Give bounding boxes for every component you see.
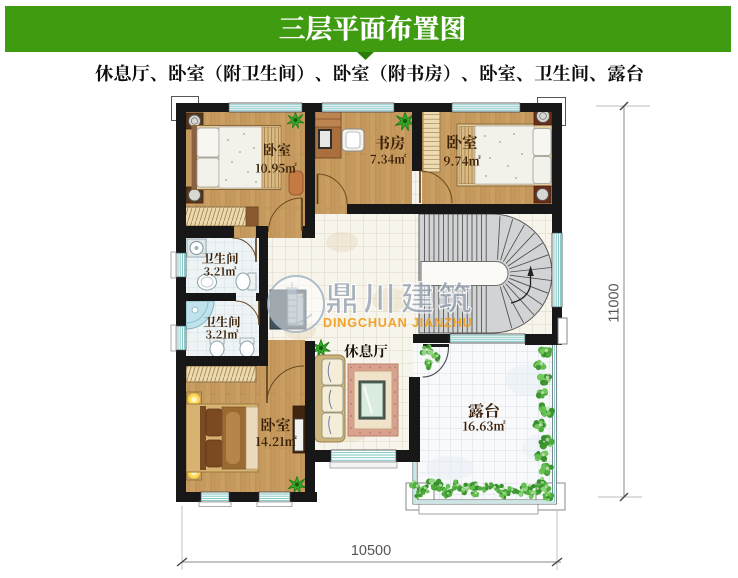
svg-text:11000: 11000 <box>607 283 623 322</box>
svg-text:DINGCHUAN JIANZHU: DINGCHUAN JIANZHU <box>323 316 472 330</box>
svg-text:10500: 10500 <box>351 543 391 559</box>
